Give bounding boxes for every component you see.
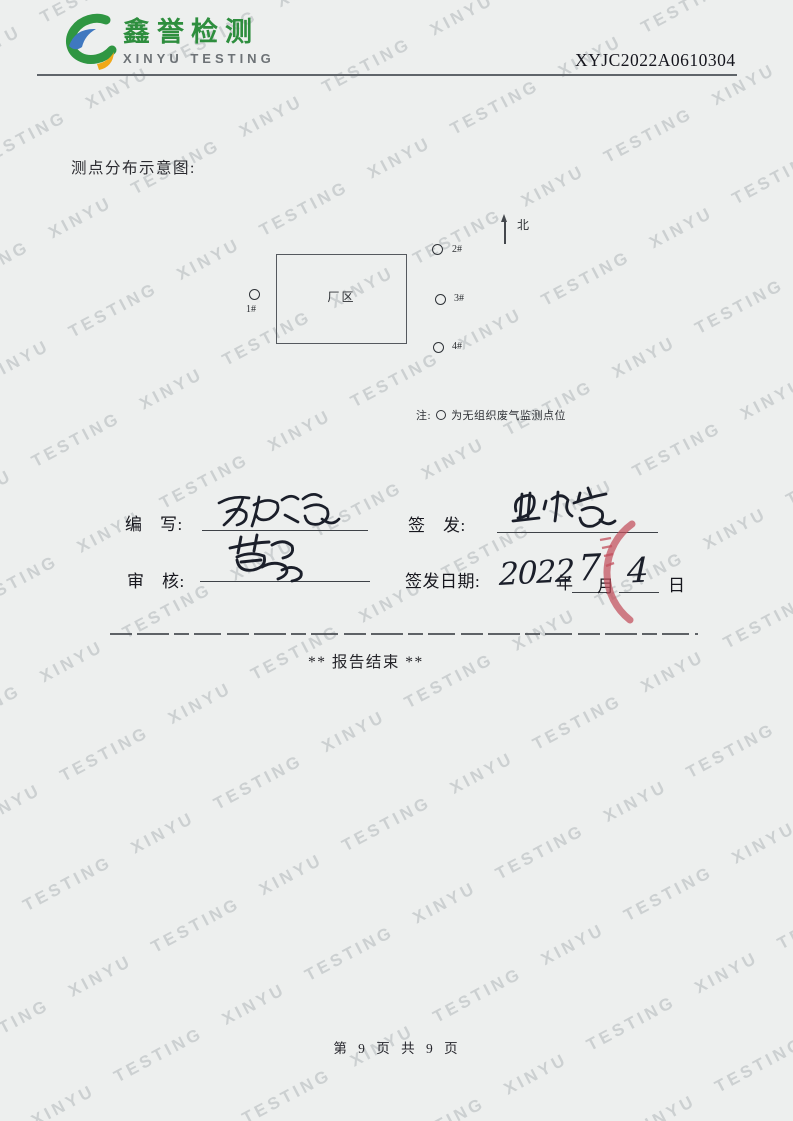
plant-area-label: 厂区 [276, 288, 407, 305]
note-text: 为无组织废气监测点位 [451, 407, 566, 423]
north-label: 北 [517, 216, 529, 233]
writer-signature-handwriting [219, 494, 339, 526]
handwritten-year: 2022 [499, 553, 574, 593]
report-page: XINYU TESTING XINYU TESTING XINYU TESTIN… [0, 0, 793, 1121]
monitoring-point-label-2: 2# [452, 244, 462, 255]
review-underline [200, 581, 370, 582]
writer-label: 编 写: [125, 510, 183, 535]
writer-underline [202, 530, 368, 531]
monitoring-point-circle-2 [432, 244, 443, 255]
issue-underline [497, 532, 658, 533]
open-circle-icon [436, 410, 446, 420]
brand-name-cn: 鑫誉检测 [123, 18, 275, 48]
handwritten-month: 7 [578, 547, 602, 589]
monitoring-point-label-1: 1# [246, 304, 256, 315]
handwritten-day: 4 [627, 550, 649, 591]
monitoring-point-circle-1 [249, 289, 260, 300]
section-title: 测点分布示意图: [71, 156, 196, 178]
day-unit: 日 [668, 571, 686, 596]
stamp-text-marks [600, 538, 614, 566]
issue-label: 签 发: [408, 511, 466, 536]
brand-block: 鑫誉检测 XINYU TESTING [123, 18, 275, 66]
logo-swirl-icon [56, 10, 122, 76]
brand-name-en: XINYU TESTING [123, 51, 275, 66]
north-arrow-line [504, 221, 506, 244]
issue-date-label: 签发日期: [405, 567, 480, 592]
note-prefix: 注: [416, 407, 431, 423]
issuer-signature-handwriting [513, 488, 615, 526]
header-rule [37, 74, 737, 76]
day-underline [619, 592, 659, 593]
review-label: 审 核: [127, 567, 185, 592]
monitoring-point-label-4: 4# [452, 341, 462, 352]
reviewer-signature-handwriting [230, 535, 301, 581]
monitoring-point-circle-4 [433, 342, 444, 353]
page-footer: 第 9 页 共 9 页 [0, 1037, 793, 1057]
report-end-note: ** 报告结束 ** [308, 650, 424, 672]
monitoring-point-label-3: 3# [454, 293, 464, 304]
report-number: XYJC2022A0610304 [575, 50, 736, 71]
monitoring-point-circle-3 [435, 294, 446, 305]
diagram-note: 注: 为无组织废气监测点位 [416, 407, 566, 423]
